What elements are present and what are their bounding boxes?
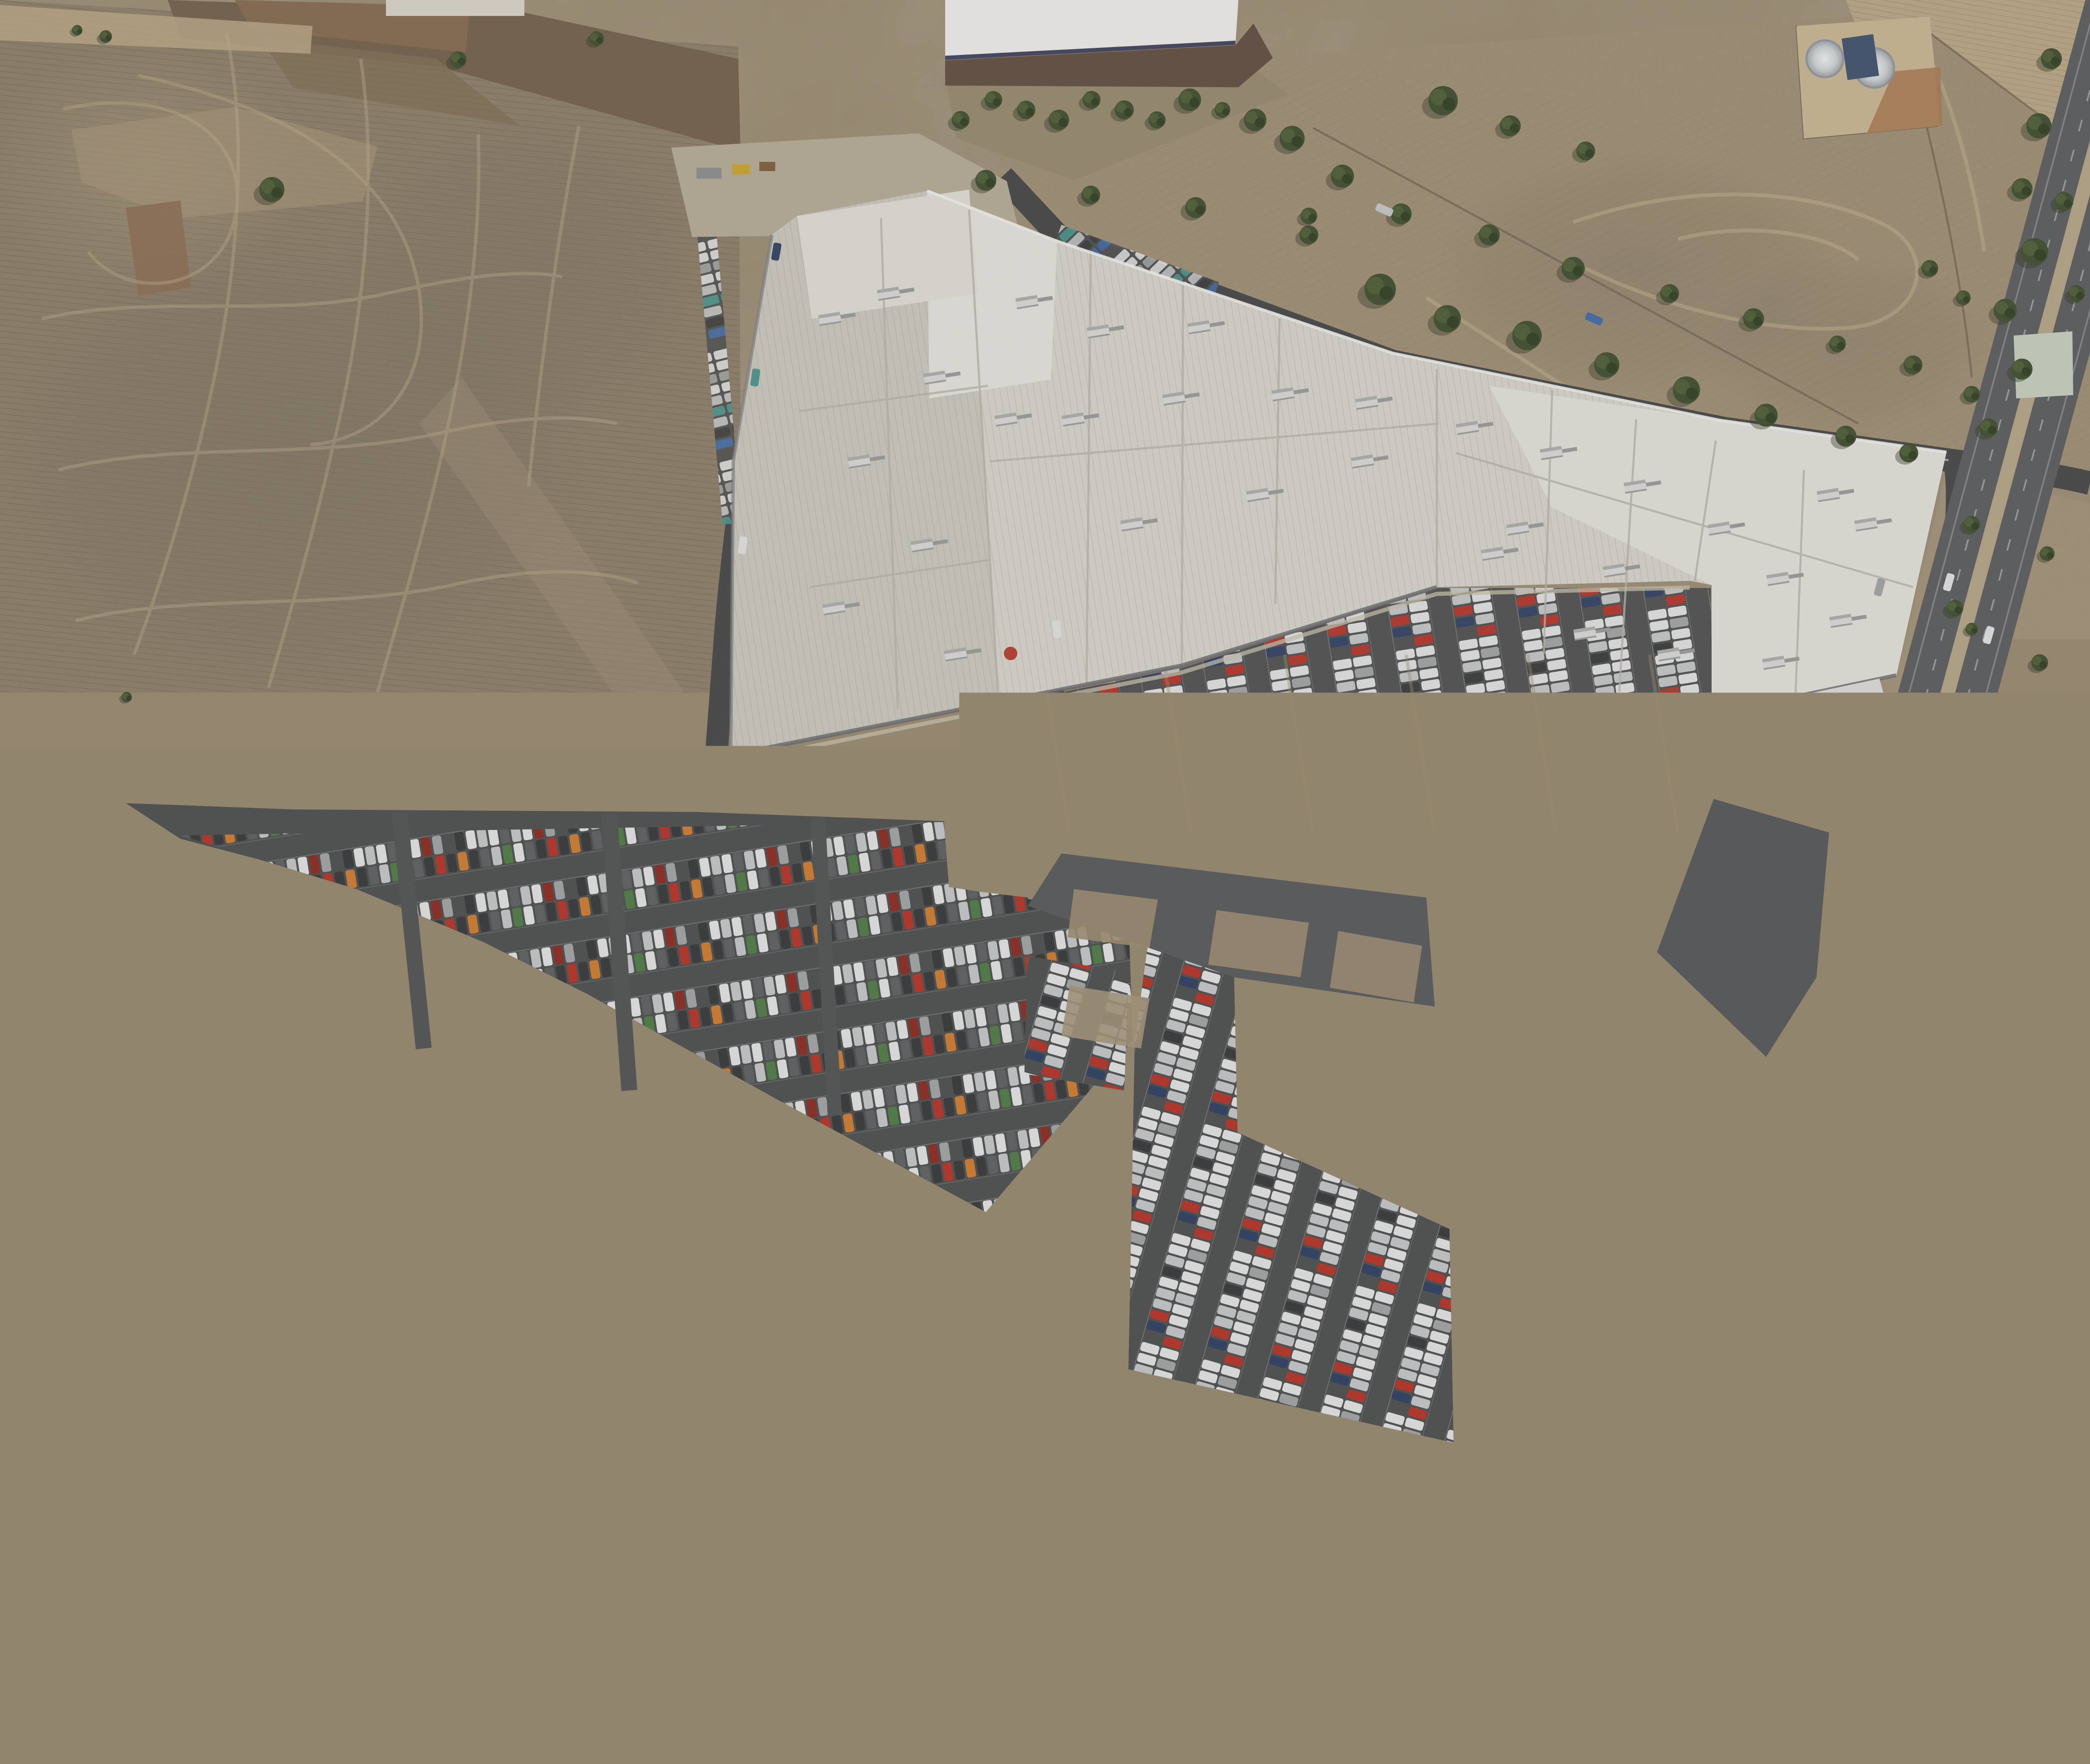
svg-text:current : clear : change: current : clear : change xyxy=(2001,1756,2062,1762)
svg-text:nearmap: nearmap xyxy=(2000,1738,2067,1756)
